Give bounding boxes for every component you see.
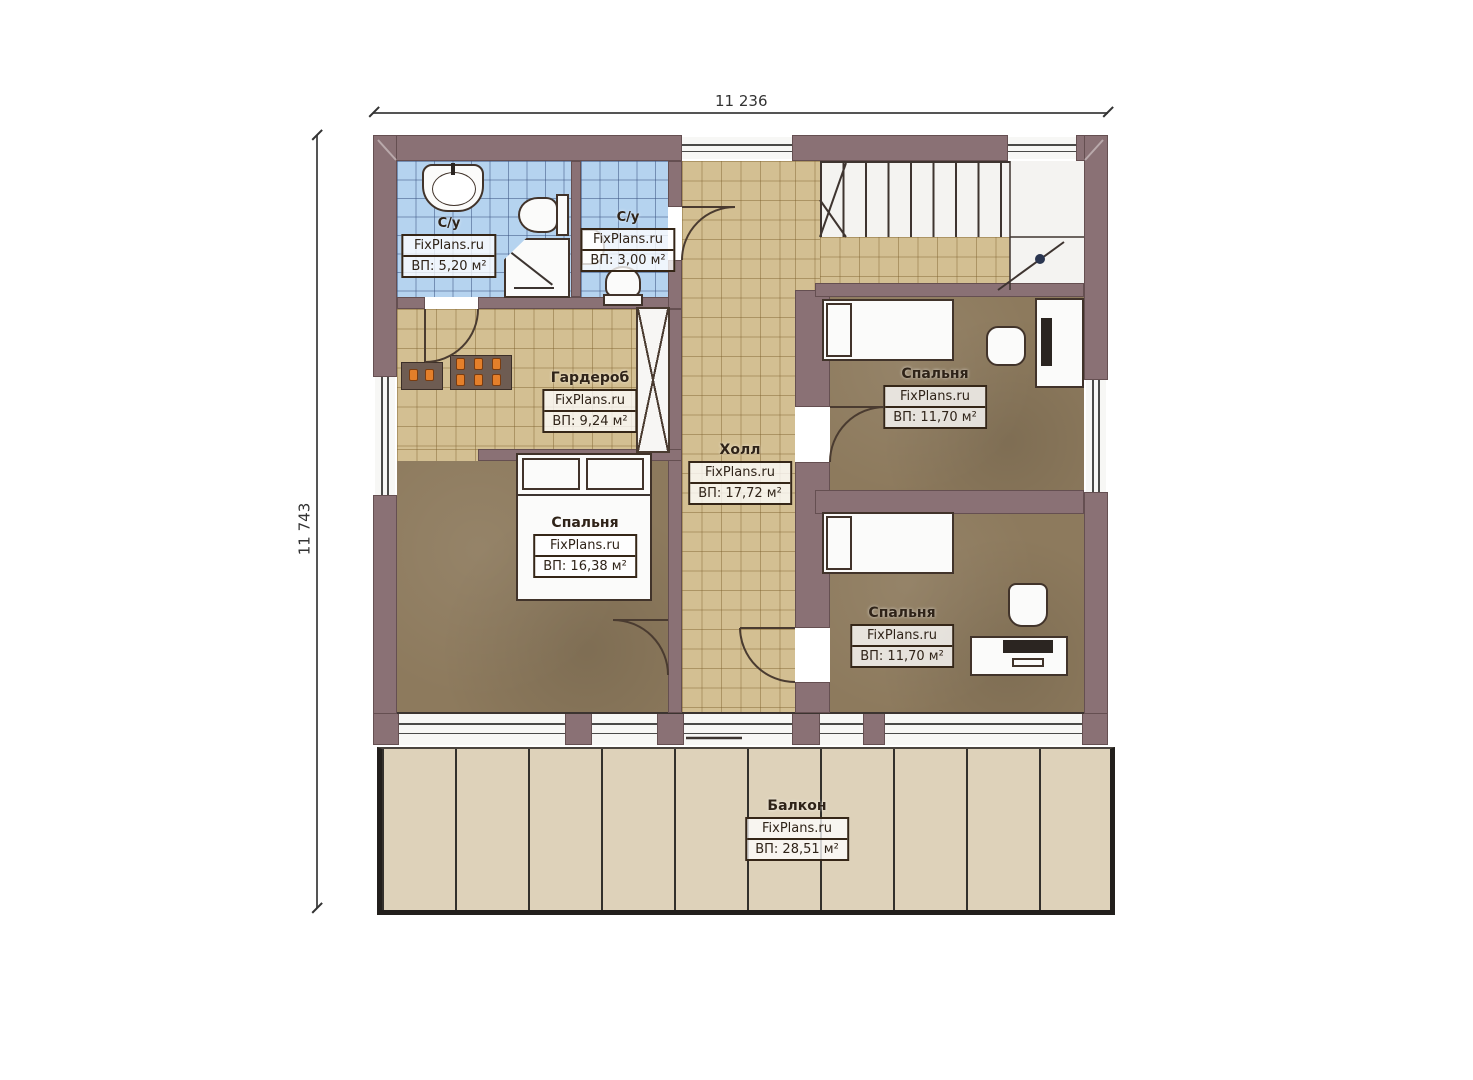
area-box: FixPlans.ru ВП: 9,24 м² <box>542 389 637 433</box>
watermark-text: FixPlans.ru <box>690 463 790 484</box>
interior-wall-hall-left <box>668 309 682 713</box>
balcony-glazing <box>397 713 1084 745</box>
watermark-text: FixPlans.ru <box>544 391 635 412</box>
interior-wall-between-bedrooms <box>815 490 1084 514</box>
room-name: Балкон <box>767 798 826 814</box>
area-text: ВП: 17,72 м² <box>690 484 790 503</box>
wall-pier <box>565 713 592 745</box>
exterior-wall-top <box>792 135 1008 161</box>
shoe-item <box>474 358 483 370</box>
area-box: FixPlans.ru ВП: 16,38 м² <box>533 534 637 578</box>
floor-edge-line <box>397 712 1084 714</box>
area-text: ВП: 11,70 м² <box>852 647 952 666</box>
exterior-wall-right <box>1084 135 1108 380</box>
area-text: ВП: 11,70 м² <box>885 408 985 427</box>
faucet-icon <box>451 163 455 175</box>
shower-ledge <box>514 287 554 289</box>
shoe-rack <box>401 362 443 390</box>
area-text: ВП: 5,20 м² <box>403 257 494 276</box>
wall-pier <box>657 713 684 745</box>
wall-pier <box>373 713 399 745</box>
area-text: ВП: 28,51 м² <box>747 840 847 859</box>
interior-wall-hall-right <box>795 682 830 713</box>
exterior-wall-top <box>373 135 682 161</box>
keyboard-icon <box>1012 658 1044 667</box>
blanket-edge <box>518 494 650 496</box>
top-dimension-label: 11 236 <box>715 92 768 110</box>
room-name: С/у <box>617 210 640 225</box>
floor-plan-canvas: 11 236 11 743 <box>0 0 1473 1080</box>
watermark-text: FixPlans.ru <box>403 236 494 257</box>
window <box>1008 137 1076 159</box>
room-name: Гардероб <box>551 370 630 386</box>
area-text: ВП: 9,24 м² <box>544 412 635 431</box>
pillow <box>826 516 852 570</box>
area-box: FixPlans.ru ВП: 11,70 м² <box>850 624 954 668</box>
window <box>682 137 792 159</box>
top-dimension-line <box>373 112 1108 114</box>
exterior-wall-left <box>373 135 397 377</box>
pillow <box>586 458 644 490</box>
interior-wall-hall-left <box>668 161 682 207</box>
watermark-text: FixPlans.ru <box>582 230 673 251</box>
area-box: FixPlans.ru ВП: 3,00 м² <box>580 228 675 272</box>
area-text: ВП: 3,00 м² <box>582 251 673 270</box>
area-text: ВП: 16,38 м² <box>535 557 635 576</box>
monitor-icon <box>1041 318 1052 366</box>
left-dimension-line <box>316 135 318 908</box>
wall-pier <box>1082 713 1108 745</box>
room-label-hall: Холл FixPlans.ru ВП: 17,72 м² <box>688 442 792 505</box>
chair <box>1008 583 1048 627</box>
area-box: FixPlans.ru ВП: 11,70 м² <box>883 385 987 429</box>
area-box: FixPlans.ru ВП: 17,72 м² <box>688 461 792 505</box>
shoe-item <box>456 358 465 370</box>
stair-void <box>1010 161 1084 290</box>
wall-pier <box>792 713 820 745</box>
interior-wall-stairs-bedroom <box>815 283 1084 297</box>
window <box>1086 380 1106 492</box>
watermark-text: FixPlans.ru <box>747 819 847 840</box>
room-label-bedroom-bottom-right: Спальня FixPlans.ru ВП: 11,70 м² <box>850 605 954 668</box>
monitor-icon <box>1003 640 1053 653</box>
chair <box>986 326 1026 366</box>
room-label-bedroom-left: Спальня FixPlans.ru ВП: 16,38 м² <box>533 515 637 578</box>
shoe-item <box>425 369 434 381</box>
exterior-wall-left <box>373 495 397 745</box>
pillow <box>826 303 852 357</box>
window <box>375 377 395 495</box>
room-name: С/у <box>438 216 461 231</box>
watermark-text: FixPlans.ru <box>852 626 952 647</box>
watermark-text: FixPlans.ru <box>885 387 985 408</box>
shoe-item <box>409 369 418 381</box>
exterior-wall-right <box>1084 492 1108 745</box>
shoe-item <box>492 374 501 386</box>
wardrobe-closet <box>636 307 670 453</box>
room-label-bedroom-top-right: Спальня FixPlans.ru ВП: 11,70 м² <box>883 366 987 429</box>
room-label-bathroom-2: С/у FixPlans.ru ВП: 3,00 м² <box>580 210 675 272</box>
hall-floor-extension <box>795 161 820 290</box>
staircase-treads <box>820 161 1010 241</box>
hall-floor <box>682 161 795 713</box>
room-label-balcony: Балкон FixPlans.ru ВП: 28,51 м² <box>745 798 849 861</box>
watermark-text: FixPlans.ru <box>535 536 635 557</box>
area-box: FixPlans.ru ВП: 5,20 м² <box>401 234 496 278</box>
room-name: Спальня <box>901 366 968 382</box>
interior-wall-under-bathrooms <box>397 297 425 309</box>
room-label-wardrobe: Гардероб FixPlans.ru ВП: 9,24 м² <box>542 370 637 433</box>
shoe-item <box>492 358 501 370</box>
room-name: Холл <box>720 442 761 458</box>
room-name: Спальня <box>868 605 935 621</box>
toilet-tank <box>603 294 643 306</box>
sink-basin <box>432 172 476 206</box>
shoe-item <box>474 374 483 386</box>
room-label-bathroom-1: С/у FixPlans.ru ВП: 5,20 м² <box>401 216 496 278</box>
area-box: FixPlans.ru ВП: 28,51 м² <box>745 817 849 861</box>
pillow <box>522 458 580 490</box>
shoe-item <box>456 374 465 386</box>
left-dimension-label: 11 743 <box>295 503 313 556</box>
wall-pier <box>863 713 885 745</box>
room-name: Спальня <box>551 515 618 531</box>
toilet <box>518 197 558 233</box>
